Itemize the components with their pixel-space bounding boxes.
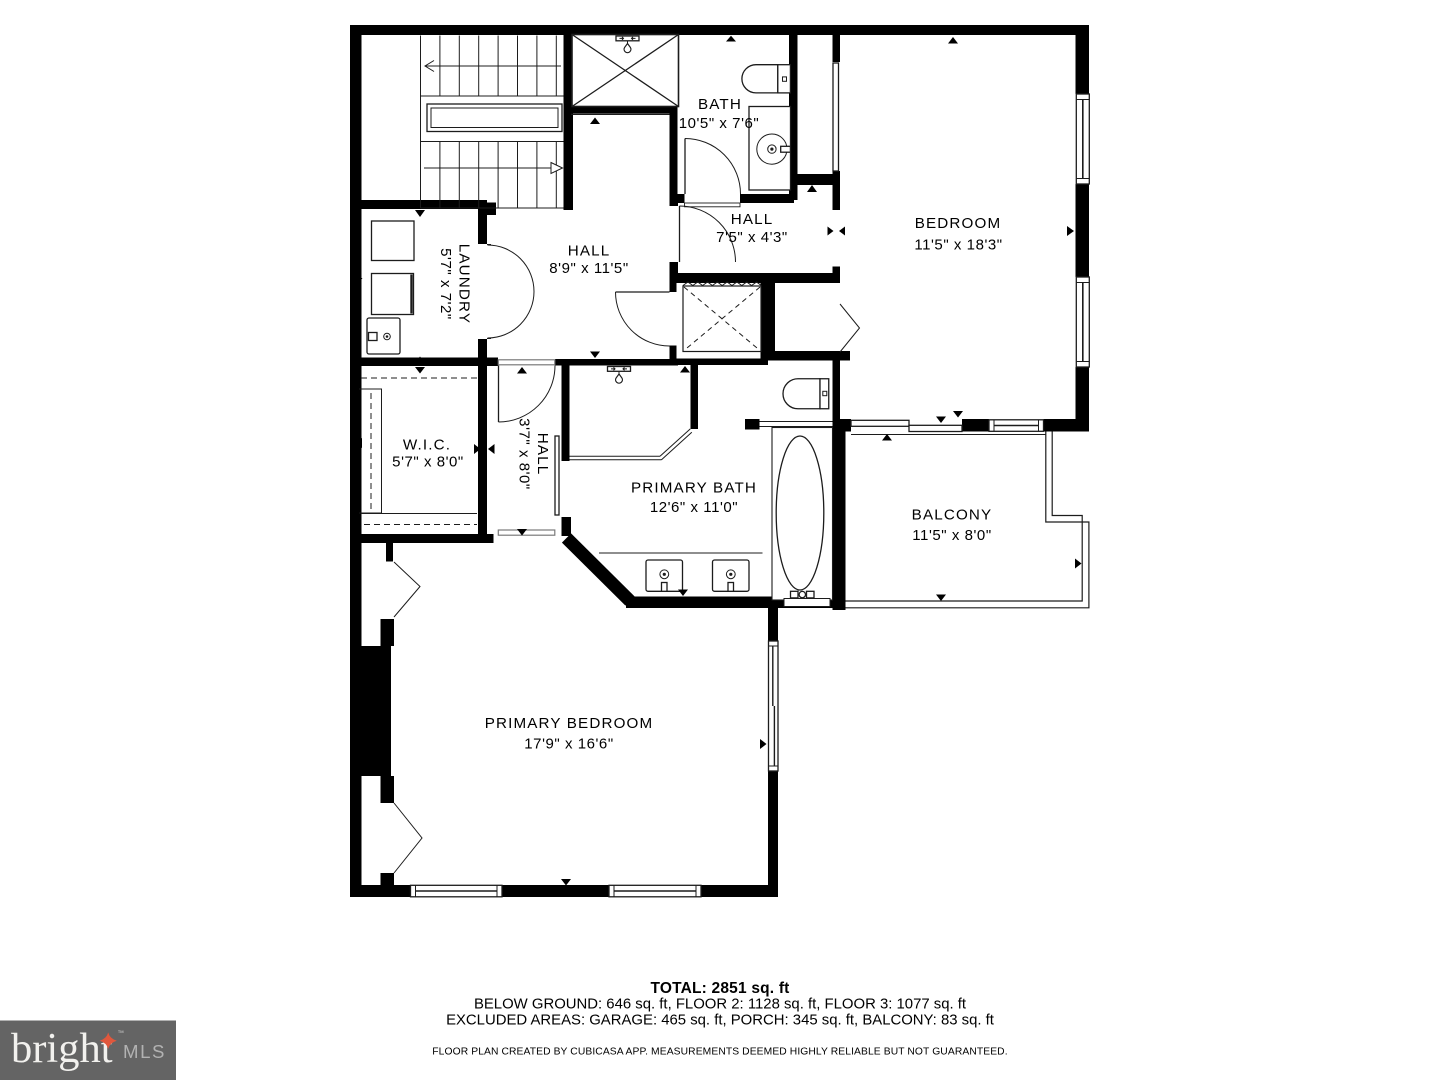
- svg-text:TOTAL: 2851 sq. ft: TOTAL: 2851 sq. ft: [650, 980, 789, 997]
- svg-text:11'5" x 8'0": 11'5" x 8'0": [912, 527, 991, 544]
- svg-text:11'5" x 18'3": 11'5" x 18'3": [914, 237, 1002, 254]
- svg-text:17'9" x 16'6": 17'9" x 16'6": [524, 736, 613, 753]
- svg-text:LAUNDRY: LAUNDRY: [455, 244, 472, 324]
- svg-text:EXCLUDED AREAS: GARAGE: 465 sq: EXCLUDED AREAS: GARAGE: 465 sq. ft, PORC…: [446, 1013, 995, 1029]
- svg-text:BATH: BATH: [698, 96, 742, 113]
- svg-text:bright: bright: [11, 1025, 113, 1072]
- svg-text:12'6" x 11'0": 12'6" x 11'0": [650, 499, 738, 516]
- svg-text:3'7" x 8'0": 3'7" x 8'0": [516, 418, 533, 490]
- svg-text:PRIMARY BEDROOM: PRIMARY BEDROOM: [485, 715, 654, 732]
- svg-text:10'5" x 7'6": 10'5" x 7'6": [679, 115, 760, 132]
- svg-text:HALL: HALL: [568, 243, 611, 260]
- svg-text:BALCONY: BALCONY: [912, 507, 993, 524]
- svg-text:BEDROOM: BEDROOM: [915, 215, 1002, 232]
- svg-text:HALL: HALL: [731, 211, 774, 228]
- svg-text:FLOOR PLAN CREATED BY CUBICASA: FLOOR PLAN CREATED BY CUBICASA APP. MEAS…: [432, 1047, 1007, 1058]
- svg-text:5'7" x 7'2": 5'7" x 7'2": [437, 248, 454, 320]
- svg-text:BELOW GROUND: 646 sq. ft, FLOO: BELOW GROUND: 646 sq. ft, FLOOR 2: 1128 …: [474, 997, 967, 1013]
- svg-text:W.I.C.: W.I.C.: [403, 437, 451, 454]
- svg-text:8'9" x 11'5": 8'9" x 11'5": [549, 260, 628, 277]
- svg-text:PRIMARY BATH: PRIMARY BATH: [631, 480, 757, 497]
- svg-text:HALL: HALL: [534, 433, 551, 476]
- svg-text:7'5" x 4'3": 7'5" x 4'3": [716, 229, 788, 246]
- svg-text:5'7" x 8'0": 5'7" x 8'0": [392, 454, 464, 471]
- svg-text:MLS: MLS: [123, 1041, 166, 1062]
- svg-text:™: ™: [118, 1030, 125, 1037]
